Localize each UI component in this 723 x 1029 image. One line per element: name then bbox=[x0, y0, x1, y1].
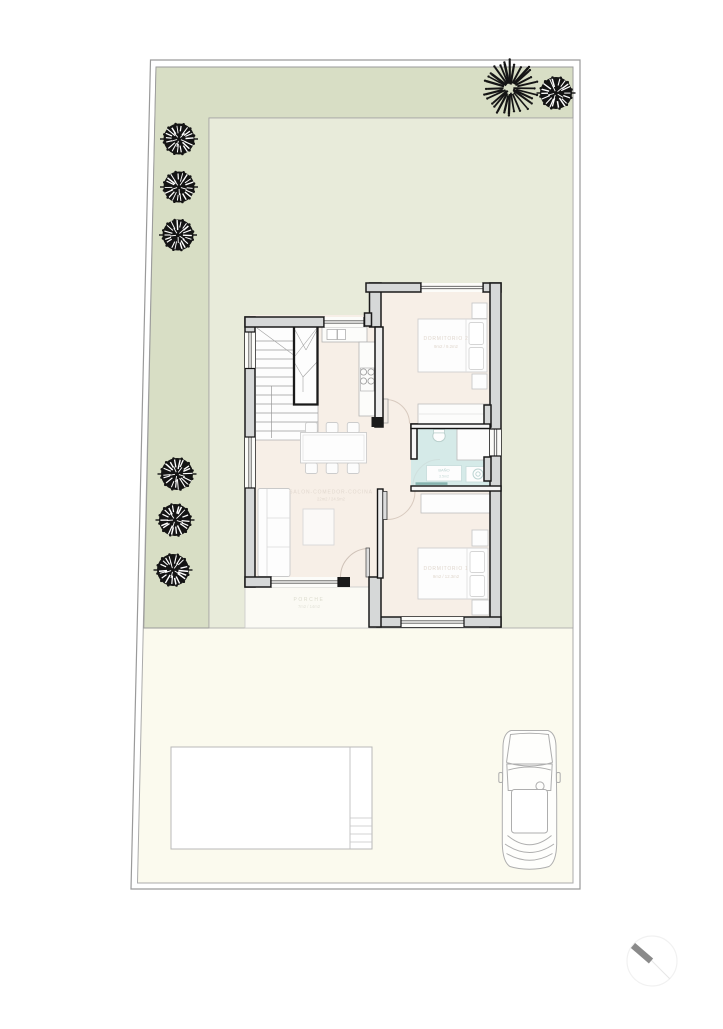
svg-text:9m2 / 9.2m2: 9m2 / 9.2m2 bbox=[434, 344, 458, 349]
svg-text:7m2 / 14m2: 7m2 / 14m2 bbox=[298, 604, 321, 609]
svg-text:SALON-COMEDOR-COCINA: SALON-COMEDOR-COCINA bbox=[289, 490, 373, 496]
svg-text:3.5m2: 3.5m2 bbox=[439, 475, 449, 479]
svg-text:9m2 / 12.3m2: 9m2 / 12.3m2 bbox=[433, 574, 460, 579]
svg-text:BAÑO: BAÑO bbox=[438, 468, 449, 473]
svg-text:22m2 / 24.5m2: 22m2 / 24.5m2 bbox=[317, 497, 346, 502]
svg-text:DORMITORIO 1: DORMITORIO 1 bbox=[424, 566, 469, 572]
svg-text:PORCHE: PORCHE bbox=[294, 597, 325, 603]
svg-text:DORMITORIO 2: DORMITORIO 2 bbox=[424, 336, 469, 342]
